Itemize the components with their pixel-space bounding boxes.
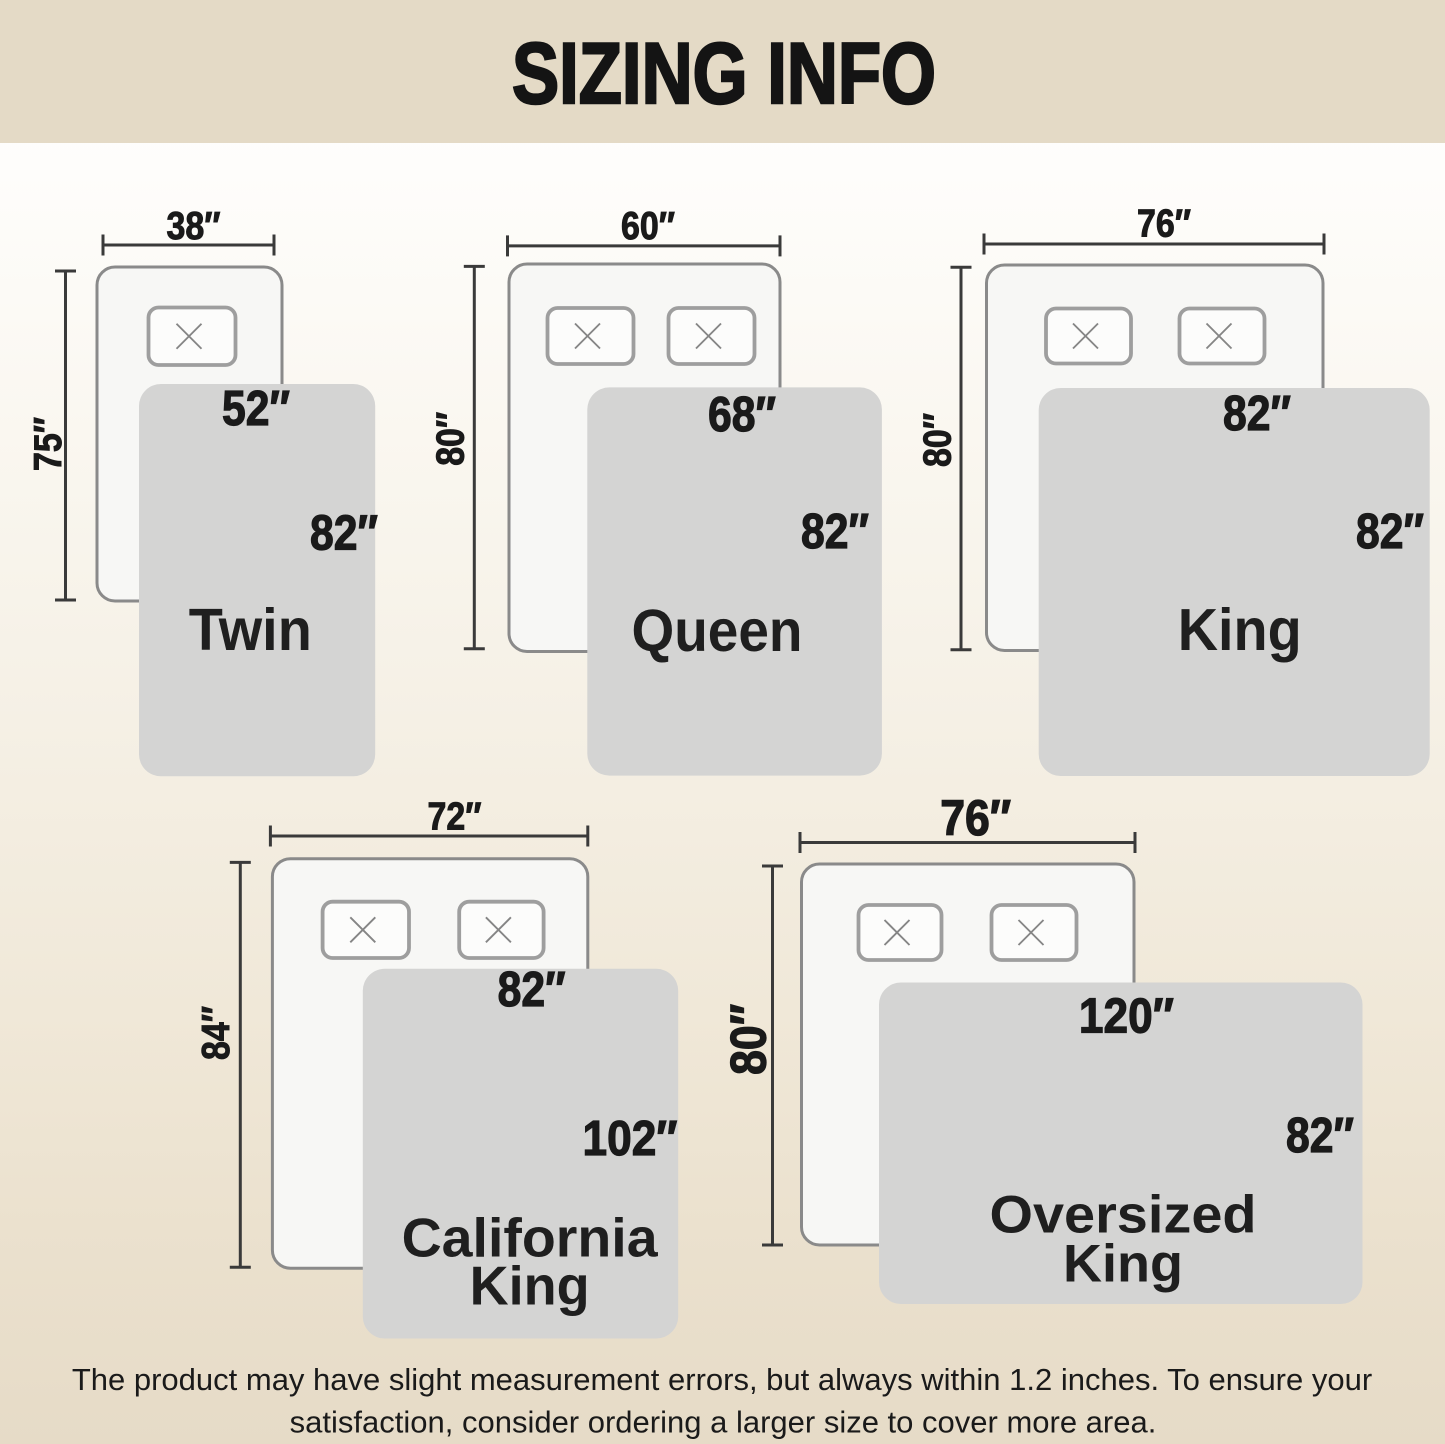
svg-text:72″: 72″ <box>428 796 482 839</box>
svg-text:60″: 60″ <box>621 205 675 248</box>
svg-text:King: King <box>470 1255 590 1317</box>
svg-text:The product may have slight me: The product may have slight measurement … <box>72 1362 1372 1397</box>
svg-text:satisfaction, consider orderin: satisfaction, consider ordering a larger… <box>290 1405 1157 1440</box>
svg-text:80″: 80″ <box>430 412 473 466</box>
svg-text:76″: 76″ <box>940 790 1011 846</box>
svg-text:76″: 76″ <box>1137 203 1191 246</box>
svg-text:68″: 68″ <box>708 387 776 442</box>
svg-text:80″: 80″ <box>720 1004 776 1075</box>
svg-text:82″: 82″ <box>801 504 869 559</box>
svg-text:75″: 75″ <box>27 417 70 471</box>
svg-text:102″: 102″ <box>583 1111 678 1166</box>
svg-text:52″: 52″ <box>222 381 290 436</box>
svg-text:82″: 82″ <box>310 506 378 561</box>
svg-text:82″: 82″ <box>498 962 566 1017</box>
svg-text:120″: 120″ <box>1079 989 1174 1044</box>
svg-text:King: King <box>1178 597 1302 663</box>
svg-text:82″: 82″ <box>1223 386 1291 441</box>
svg-text:Twin: Twin <box>189 597 312 663</box>
svg-text:SIZING INFO: SIZING INFO <box>512 26 936 122</box>
svg-text:King: King <box>1063 1235 1183 1294</box>
svg-text:82″: 82″ <box>1356 504 1424 559</box>
svg-text:84″: 84″ <box>195 1006 238 1060</box>
svg-text:38″: 38″ <box>167 205 221 248</box>
svg-text:Queen: Queen <box>632 598 803 664</box>
svg-text:82″: 82″ <box>1286 1108 1354 1163</box>
svg-text:80″: 80″ <box>916 413 959 467</box>
